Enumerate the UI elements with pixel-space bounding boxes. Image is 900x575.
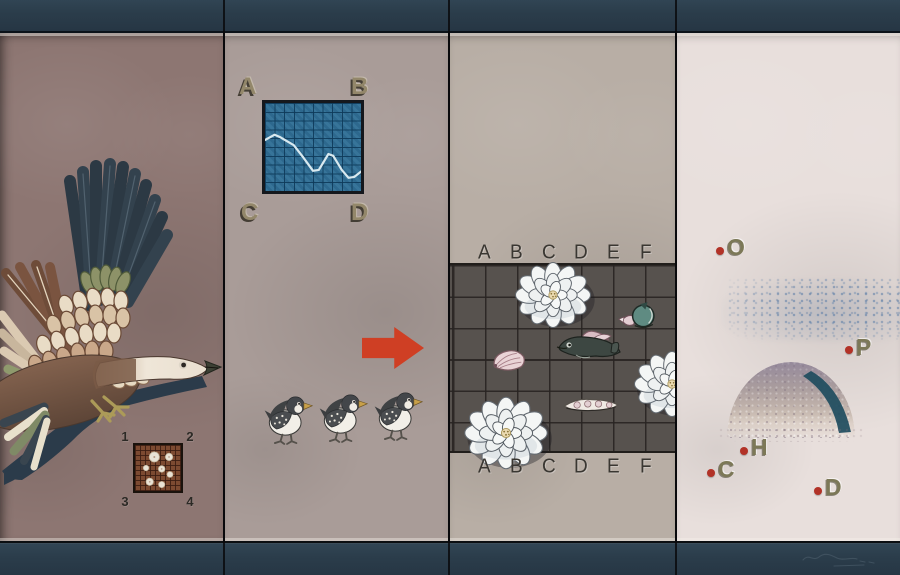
red-dot-h — [740, 447, 748, 455]
grid-corner-number-4: 4 — [184, 494, 196, 509]
red-dot-p — [845, 346, 853, 354]
panel-gap-2 — [448, 0, 450, 575]
panel-gap-1 — [223, 0, 225, 575]
flower-dots — [135, 445, 181, 491]
stipple-cloud-icon — [728, 278, 900, 340]
seed-pod-illustration — [560, 395, 622, 415]
panel-3-board: A B C D E F — [450, 33, 675, 541]
board-col-bottom-a: A — [478, 456, 491, 477]
panel-1-goose: 1 2 3 4 — [0, 33, 223, 541]
stencil-letter-p: P — [856, 336, 872, 359]
chick-illustration-1 — [260, 385, 316, 447]
stencil-letter-h: H — [751, 436, 768, 459]
stone-dome-illustration — [727, 362, 855, 442]
right-arrow-icon — [362, 327, 424, 369]
red-dot-d — [814, 487, 822, 495]
peony-right-illustration — [622, 343, 675, 425]
painting-canvas: 1 2 3 4 A B C D A B C D E F — [0, 0, 900, 575]
stencil-letter-d: D — [351, 201, 369, 225]
stencil-letter-c: C — [241, 201, 259, 225]
chick-illustration-2 — [315, 383, 371, 445]
grid-corner-number-2: 2 — [184, 429, 196, 444]
stencil-letter-b: B — [351, 75, 369, 99]
grid-corner-number-1: 1 — [119, 429, 131, 444]
line-chart — [262, 100, 364, 194]
grid-corner-number-3: 3 — [119, 494, 131, 509]
top-frame-band — [0, 0, 900, 33]
panel-gap-3 — [675, 0, 677, 575]
panel-2-chart: A B C D — [225, 33, 448, 541]
fish-illustration — [553, 328, 625, 364]
artist-signature — [800, 549, 884, 567]
stencil-letter-o: O — [727, 236, 745, 259]
board-col-bottom-c: C — [542, 456, 556, 477]
board-col-top-f: F — [640, 242, 652, 263]
chart-plot-area — [265, 103, 361, 191]
clam-illustration — [490, 347, 528, 373]
board-col-top-e: E — [607, 242, 620, 263]
red-dot-c — [707, 469, 715, 477]
chick-illustration-3 — [370, 381, 426, 443]
board-col-bottom-d: D — [574, 456, 588, 477]
board-col-top-a: A — [478, 242, 491, 263]
board-col-bottom-f: F — [640, 456, 652, 477]
chart-line — [265, 135, 361, 178]
panel-4-letters: O P H C D — [677, 33, 900, 541]
bottom-frame-band — [0, 543, 900, 575]
stencil-letter-a: A — [239, 75, 257, 99]
dome-base-spray — [719, 428, 865, 442]
red-dot-o — [716, 247, 724, 255]
board-col-bottom-b: B — [510, 456, 523, 477]
stencil-letter-d2: D — [825, 476, 842, 499]
stencil-letter-c2: C — [718, 458, 735, 481]
flower-dot-grid — [133, 443, 183, 493]
board-col-bottom-e: E — [607, 456, 620, 477]
peony-top-illustration — [503, 255, 603, 335]
